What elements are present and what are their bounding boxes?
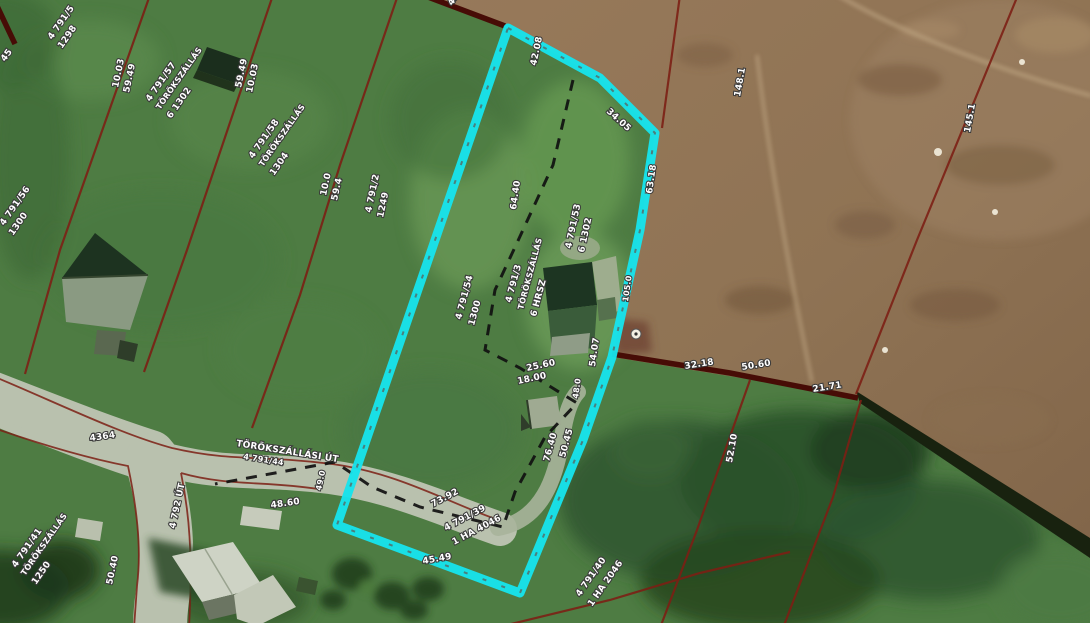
- building-parcel-house-roof-dark: [543, 262, 597, 311]
- survey-point-icon-center: [634, 332, 637, 335]
- survey-point-symbols: [631, 329, 641, 339]
- cadastral-map-view[interactable]: 454 791/5129845610.0359.4959.4910.034 79…: [0, 0, 1090, 623]
- building-small-shed-west: [75, 518, 103, 541]
- map-canvas[interactable]: 454 791/5129845610.0359.4959.4910.034 79…: [0, 0, 1090, 623]
